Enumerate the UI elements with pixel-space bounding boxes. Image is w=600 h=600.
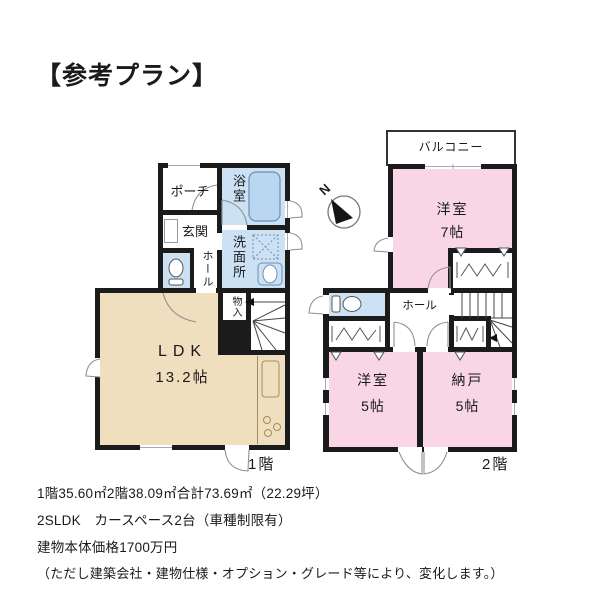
window-right-lower	[285, 233, 290, 250]
room-toilet-1f	[163, 253, 190, 288]
door-gap-storage5	[426, 347, 448, 352]
floor1-caption: 1階	[248, 453, 275, 474]
door-gap-stairs-2f	[449, 295, 454, 315]
window-balcony-door	[425, 164, 481, 169]
door-gap-west7	[428, 288, 451, 293]
storage5-label: 納戸	[425, 370, 510, 390]
window-storage-right-b	[512, 403, 517, 415]
ldk-label: LDK	[120, 343, 245, 361]
washroom-label: 洗面所	[229, 235, 248, 280]
west7-size-label: 7帖	[410, 222, 495, 242]
window-porch-top	[168, 163, 200, 168]
door-gap-ldk-bottom	[225, 445, 249, 450]
footer-layout-line: 2SLDK カースペース2台（車種制限有）	[37, 509, 292, 529]
door-gap-west5	[393, 347, 415, 352]
compass-icon	[328, 196, 360, 228]
balcony-label: バルコニー	[388, 132, 514, 163]
entrance-label: 玄関	[172, 221, 218, 240]
hall-1f-label: ホール	[199, 250, 215, 289]
floorplan-page: 【参考プラン】 バルコニー	[0, 0, 600, 600]
floor2-caption: 2階	[482, 453, 509, 474]
window-west7-left	[388, 237, 393, 252]
window-bottom-left-2f	[398, 447, 422, 452]
window-ldk-bottom	[140, 445, 172, 450]
window-storage-right-a	[512, 378, 517, 390]
room-balcony: バルコニー	[386, 130, 516, 166]
storage5-size-label: 5帖	[425, 396, 510, 416]
west7-label: 洋室	[410, 199, 495, 219]
footer-price-line: 建物本体価格1700万円	[37, 536, 177, 556]
small-closet	[454, 321, 486, 347]
page-title: 【参考プラン】	[36, 56, 218, 92]
ldk-size-label: 13.2帖	[120, 366, 245, 387]
hall-2f-label: ホール	[390, 297, 449, 313]
door-gap-ldk-left	[95, 358, 100, 377]
west5-label: 洋室	[331, 370, 415, 390]
closet-west5	[329, 321, 385, 347]
footer-area-line: 1階35.60㎡2階38.09㎡合計73.69㎡（22.29坪）	[37, 482, 329, 502]
closet-1f-label: 物入	[228, 296, 243, 318]
door-gap-bath	[222, 225, 247, 230]
window-west5-left-a	[323, 378, 329, 390]
stairs-1f	[251, 293, 285, 350]
porch-label: ポーチ	[163, 181, 217, 200]
west5-size-label: 5帖	[331, 396, 415, 416]
bath-label: 浴室	[229, 174, 248, 204]
window-bottom-right-2f	[424, 447, 448, 452]
room-toilet-2f	[329, 293, 385, 316]
window-right-upper	[285, 201, 290, 218]
window-west5-left-b	[323, 403, 329, 415]
footer-note-line: （ただし建築会社・建物仕様・オプション・グレード等により、変化します。）	[37, 563, 504, 582]
door-gap-toilet-2f	[323, 295, 329, 314]
compass-north-label: N	[316, 181, 333, 198]
closet-west7	[453, 253, 512, 288]
